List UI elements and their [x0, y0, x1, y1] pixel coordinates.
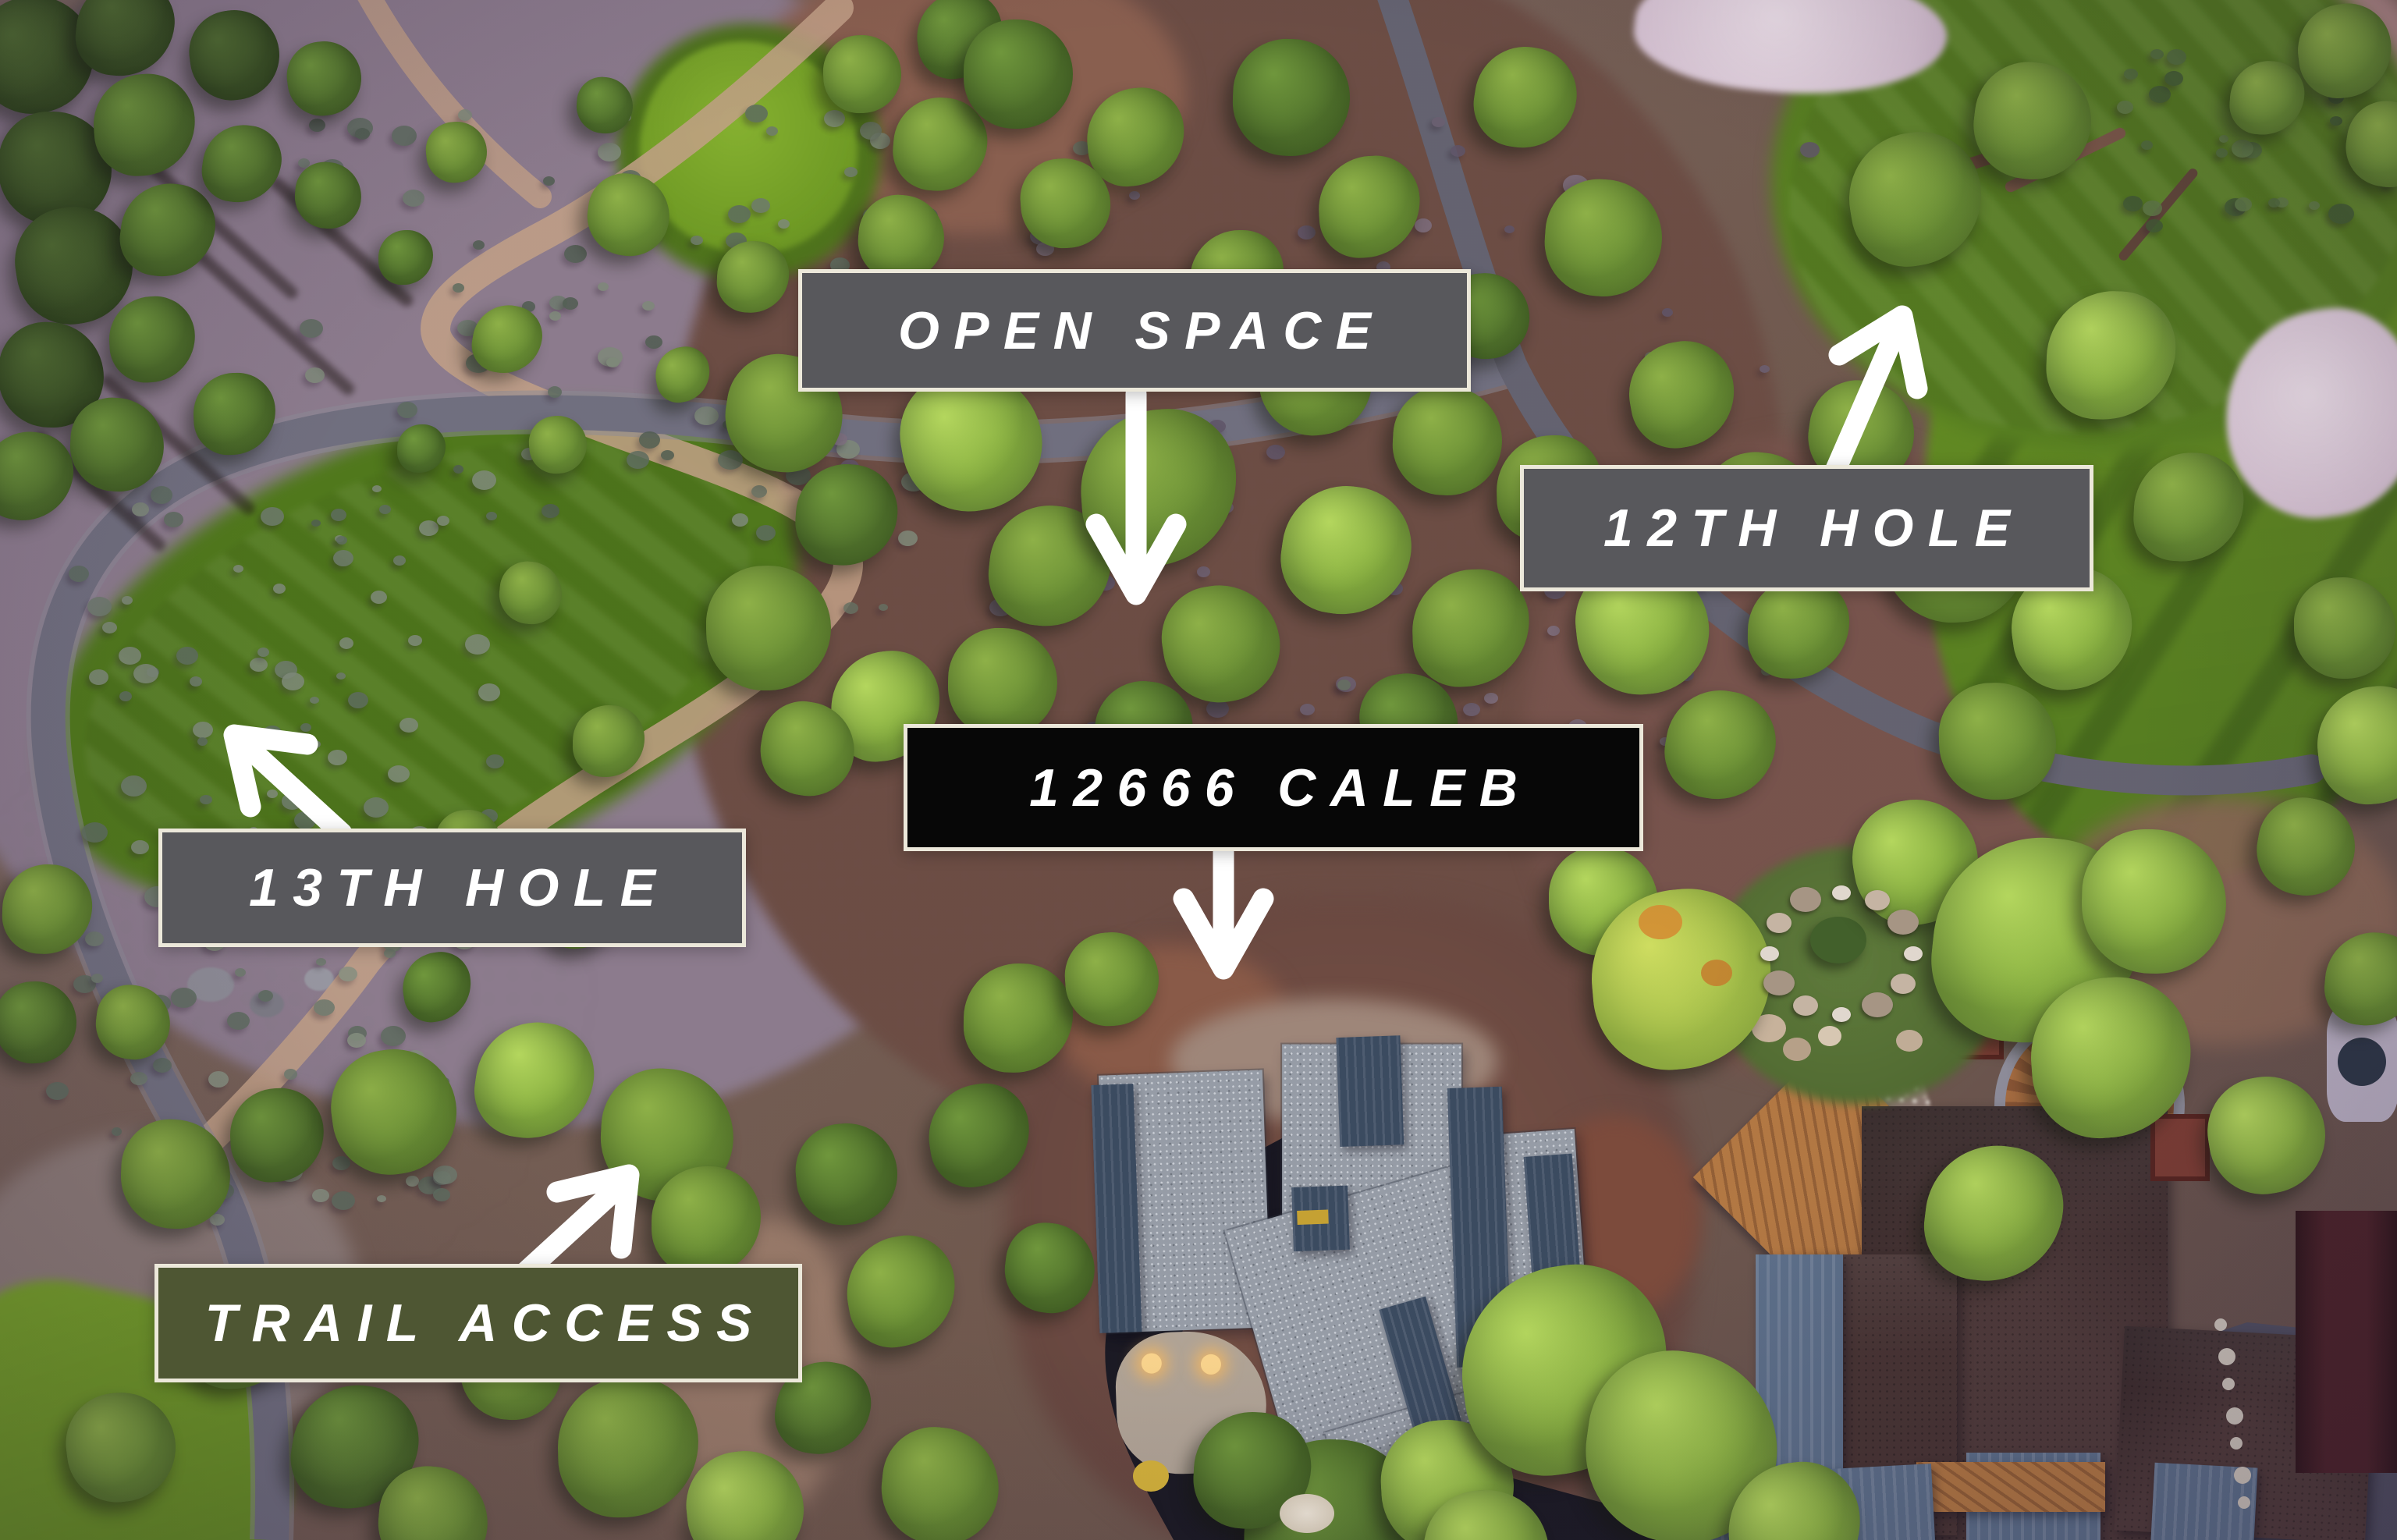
arrow-open-space [1096, 394, 1176, 594]
label-trail-access: TRAIL ACCESS [154, 1264, 802, 1382]
label-12th-hole: 12TH HOLE [1520, 465, 2093, 591]
label-address-text: 12666 CALEB [1015, 758, 1532, 818]
label-trail-access-text: TRAIL ACCESS [190, 1293, 765, 1354]
arrow-13th-hole [234, 735, 342, 833]
label-13th-hole: 13TH HOLE [158, 829, 746, 947]
label-open-space-text: OPEN SPACE [884, 300, 1386, 361]
aerial-photo: OPEN SPACE 12TH HOLE 13TH HOLE 12666 CAL… [0, 0, 2397, 1540]
arrow-12th-hole [1834, 316, 1917, 474]
label-12th-hole-text: 12TH HOLE [1589, 498, 2025, 559]
label-address: 12666 CALEB [904, 724, 1643, 851]
label-open-space: OPEN SPACE [798, 269, 1471, 392]
label-13th-hole-text: 13TH HOLE [235, 857, 670, 918]
arrow-address [1184, 852, 1263, 969]
arrow-trail-access [524, 1175, 629, 1273]
